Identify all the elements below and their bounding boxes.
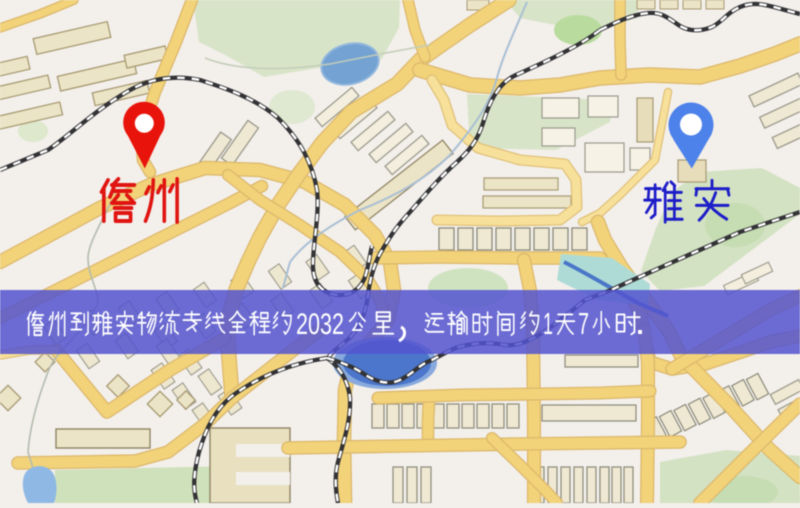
svg-text:7: 7 — [578, 306, 589, 341]
svg-text:2032: 2032 — [296, 308, 344, 341]
svg-text:1: 1 — [543, 306, 553, 341]
